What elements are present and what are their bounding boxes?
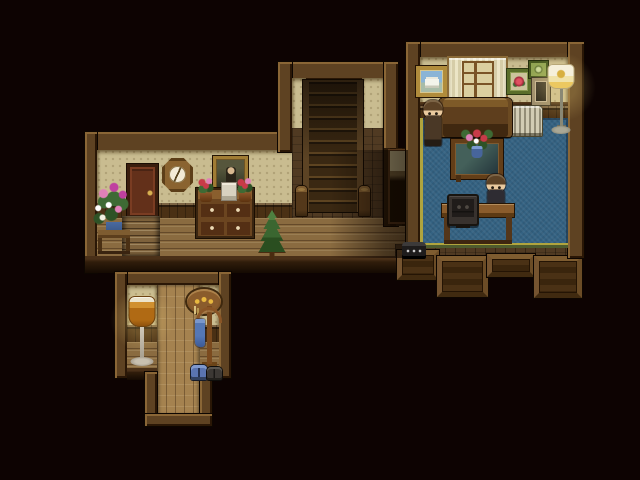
shoes-blue <box>191 365 207 380</box>
porch-panel-c <box>487 254 535 277</box>
character-standing[interactable] <box>420 100 445 146</box>
hall-top-wall <box>85 132 292 152</box>
wall-clock[interactable] <box>162 158 193 192</box>
monitor[interactable] <box>447 194 479 226</box>
entry-top-wall <box>115 272 231 285</box>
radiator <box>511 106 542 136</box>
hall-front-wall <box>85 256 400 273</box>
coat-rack[interactable] <box>193 306 225 372</box>
flower-stand <box>92 178 136 254</box>
entry-left-wall <box>115 272 127 378</box>
telephone[interactable] <box>402 242 426 258</box>
dresser-flowers-left <box>196 176 216 202</box>
hall-east-doorway[interactable] <box>390 151 406 222</box>
newel-post-left <box>296 186 307 216</box>
floor-lamp-white[interactable] <box>546 64 576 134</box>
staircase-up[interactable] <box>303 80 363 212</box>
porch-panel-b <box>437 256 488 297</box>
rose-picture <box>507 69 531 94</box>
table-bouquet <box>458 124 496 158</box>
dresser-flowers-right <box>235 176 255 202</box>
floor-lamp-amber[interactable] <box>127 296 157 366</box>
painting-building <box>416 66 447 97</box>
entry-stub-bottom-wall <box>145 414 212 426</box>
game-viewport[interactable] <box>0 0 640 480</box>
shoes-dark <box>207 367 222 380</box>
stair-hall-left-wall <box>278 62 292 152</box>
porch-panel-d <box>534 256 582 298</box>
newel-post-right <box>359 186 370 216</box>
